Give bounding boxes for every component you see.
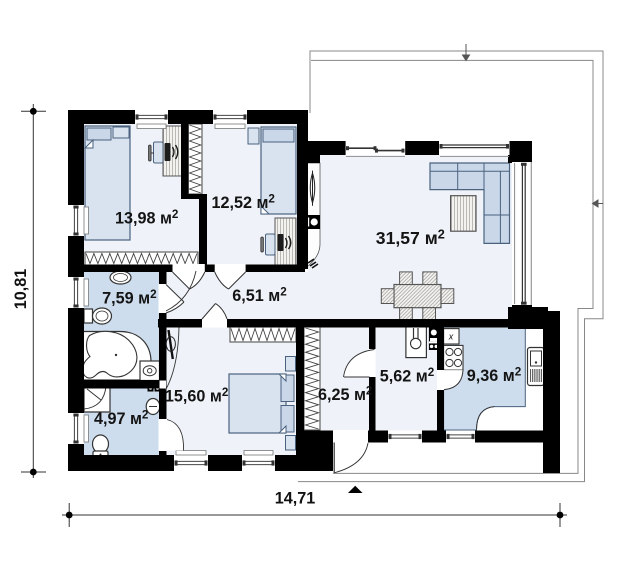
svg-text:4,97 м2: 4,97 м2 [94,409,149,429]
svg-text:13,98 м2: 13,98 м2 [115,208,179,228]
svg-text:6,25 м2: 6,25 м2 [318,385,373,405]
svg-text:x: x [448,332,454,342]
svg-text:10,81: 10,81 [12,269,30,310]
svg-text:7,59 м2: 7,59 м2 [102,288,157,308]
svg-text:15,60 м2: 15,60 м2 [165,386,229,406]
svg-text:14,71: 14,71 [275,490,316,508]
svg-text:5,62 м2: 5,62 м2 [380,366,435,386]
svg-text:6,51 м2: 6,51 м2 [232,286,287,306]
svg-text:9,36 м2: 9,36 м2 [467,365,522,385]
svg-text:12,52 м2: 12,52 м2 [211,193,275,213]
svg-text:31,57 м2: 31,57 м2 [376,228,445,249]
